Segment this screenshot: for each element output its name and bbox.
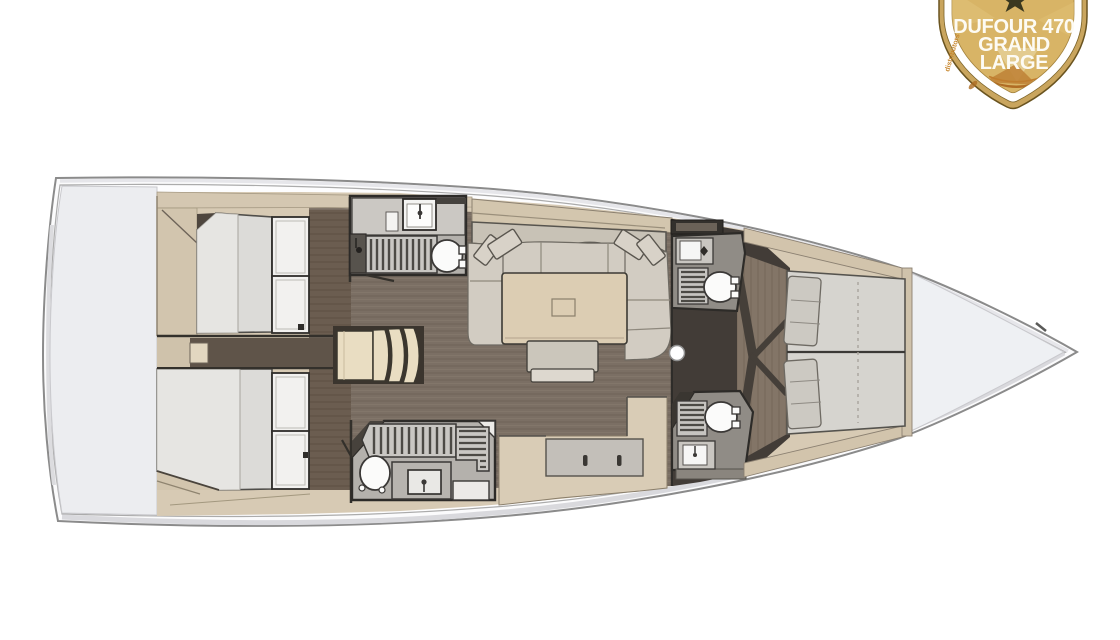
svg-text:LARGE: LARGE: [980, 52, 1049, 74]
